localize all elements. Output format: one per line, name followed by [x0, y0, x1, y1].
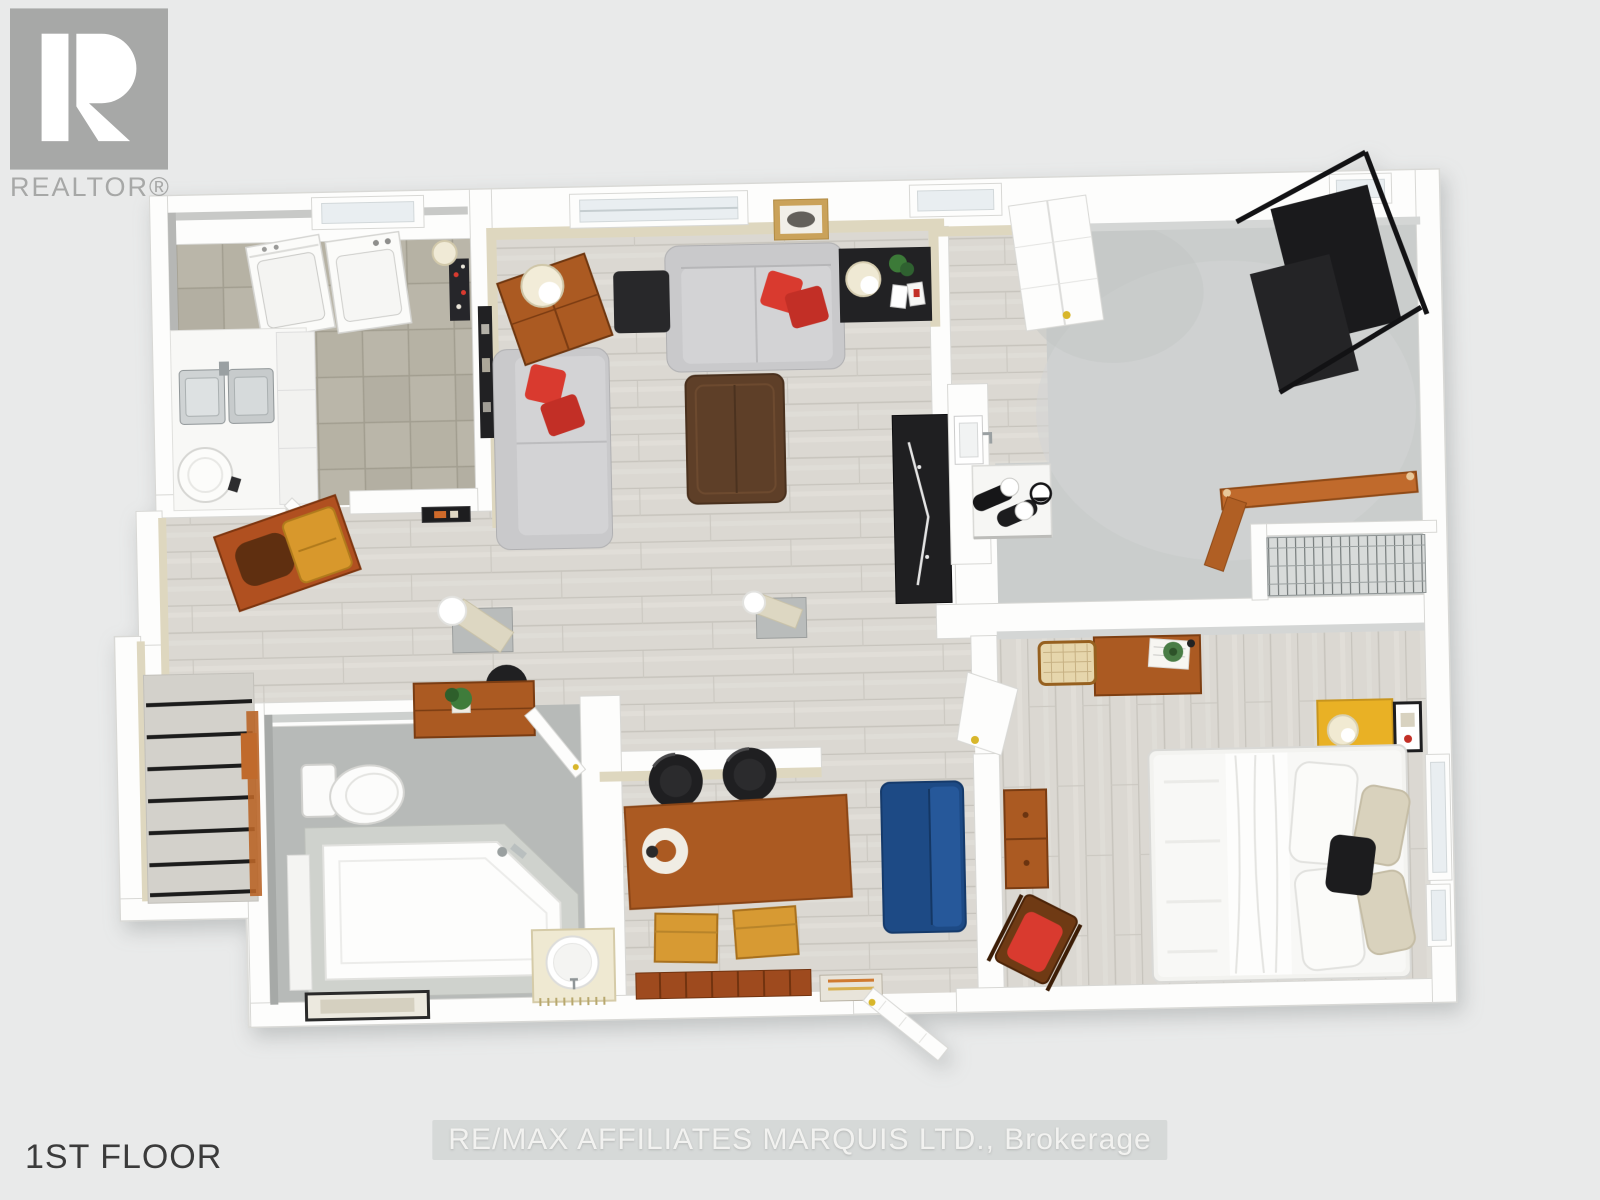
floor-plan-rendering: [0, 0, 1600, 1200]
bed: [1148, 745, 1417, 982]
wall-art-dog-picture: [774, 199, 829, 240]
floor-label: 1ST FLOOR: [25, 1138, 222, 1177]
bath-mat: [306, 991, 429, 1020]
living-window-right: [909, 183, 1002, 217]
stool-right: [733, 906, 798, 958]
brokerage-watermark: RE/MAX AFFILIATES MARQUIS LTD., Brokerag…: [432, 1120, 1167, 1160]
bedroom-desk: [1094, 635, 1201, 695]
staircase: [143, 673, 262, 903]
railing-post: [241, 733, 258, 779]
laundry-skylight: [311, 195, 424, 229]
stove: [970, 464, 1052, 538]
sofa: [493, 348, 613, 550]
bedroom-wall-art: [1394, 703, 1421, 752]
black-ottoman: [613, 270, 670, 333]
hall-wall-art: [422, 506, 470, 522]
coffee-table-ottoman: [685, 374, 786, 504]
tub-screen: [287, 855, 312, 990]
washer: [246, 235, 335, 341]
dining-table: [625, 795, 852, 909]
floorplan-page: { "branding": { "logo_icon": "realtor-r-…: [0, 0, 1600, 1200]
stool-left: [655, 914, 718, 963]
living-window-left: [569, 191, 748, 229]
tv-stand: [892, 414, 952, 603]
realtor-r-icon: [10, 8, 168, 170]
side-table: [839, 247, 933, 323]
floor-plan: [105, 146, 1458, 1078]
loveseat: [665, 243, 846, 373]
wall-art-floral: [478, 306, 495, 438]
table-lamp-left: [521, 264, 564, 307]
slat-bench: [636, 969, 812, 999]
bedroom-window-upper: [1425, 754, 1452, 880]
dresser: [1004, 789, 1048, 888]
blue-futon: [881, 781, 966, 933]
realtor-logo: REALTOR®: [10, 8, 180, 203]
realtor-logo-label: REALTOR®: [10, 172, 180, 203]
vanity-sink: [532, 929, 616, 1007]
dryer: [325, 232, 411, 334]
wicker-chair: [1039, 641, 1096, 684]
bedroom-window-lower: [1426, 884, 1451, 946]
